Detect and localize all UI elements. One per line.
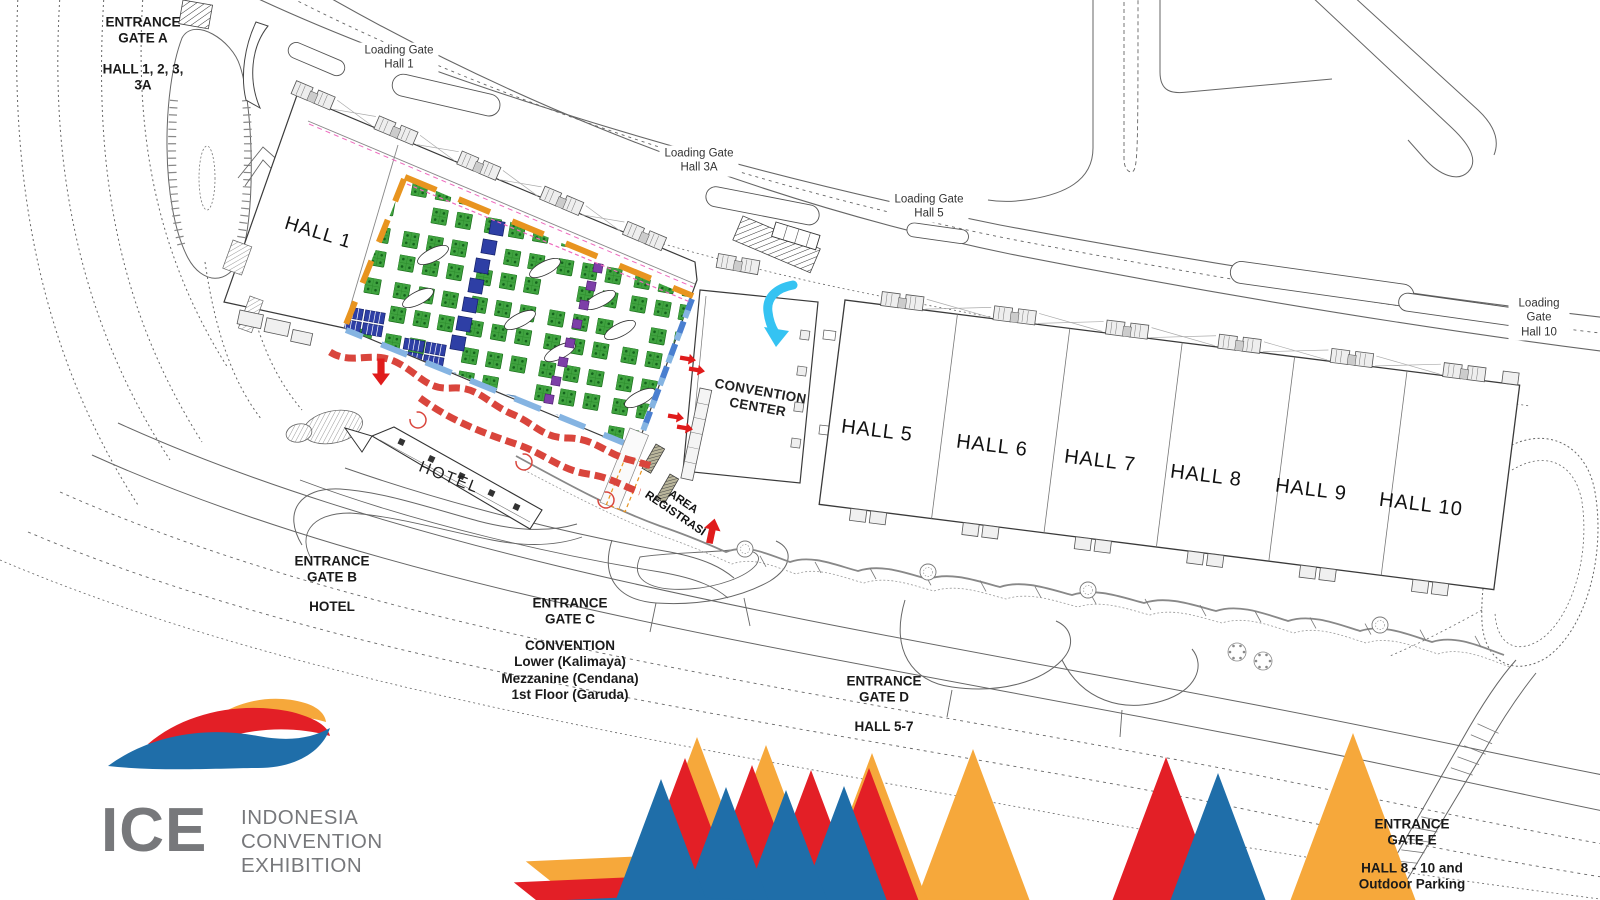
site-map-canvas: ENTRANCE GATE A HALL 1, 2, 3, 3A Loading…	[0, 0, 1600, 900]
halls-5-10	[818, 287, 1522, 601]
site-plan-graphic	[0, 0, 1600, 900]
logo-ice-acronym: ICE	[101, 800, 207, 862]
logo-ice-name: INDONESIA CONVENTION EXHIBITION	[241, 806, 383, 878]
